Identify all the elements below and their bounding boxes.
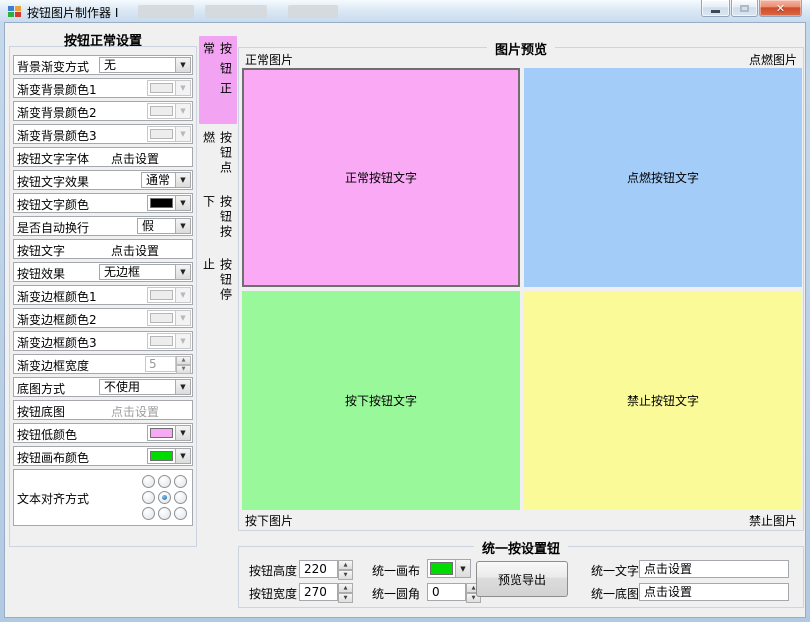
color-swatch (150, 451, 173, 461)
unified-settings-title: 统一按设置钮 (239, 538, 803, 557)
button-low-color-select[interactable]: ▼ (147, 425, 191, 441)
button-canvas-color-select[interactable]: ▼ (147, 448, 191, 464)
minimize-button[interactable] (701, 0, 730, 17)
window-content: 按钮正常设置 背景渐变方式 无 ▼ 渐变背景颜色1 ▼ (4, 22, 806, 618)
setting-label: 按钮文字颜色 (17, 196, 89, 213)
maximize-button[interactable] (731, 0, 758, 17)
align-bottom-right-radio[interactable] (174, 507, 187, 520)
chevron-down-icon: ▼ (175, 127, 190, 141)
row-button-text-font: 按钮文字字体 点击设置 (13, 147, 193, 167)
row-gradient-border-width: 渐变边框宽度 5 ▲▼ (13, 354, 193, 374)
close-icon: ✕ (776, 3, 785, 14)
color-swatch (150, 290, 173, 300)
unified-base-setter[interactable]: 点击设置 (639, 583, 789, 601)
normal-preview-panel: 正常按钮文字 (242, 68, 520, 287)
align-middle-center-radio[interactable] (158, 491, 171, 504)
chevron-down-icon: ▼ (175, 426, 190, 440)
unified-canvas-label: 统一画布 (372, 562, 420, 579)
row-button-base-image: 按钮底图 点击设置 (13, 400, 193, 420)
setting-label: 是否自动换行 (17, 219, 89, 236)
hover-preview-panel: 点燃按钮文字 (524, 68, 802, 287)
unified-text-label: 统一文字 (591, 562, 639, 579)
button-base-image-setter: 点击设置 (111, 403, 159, 420)
redacted-text (205, 5, 267, 18)
chevron-down-icon: ▼ (175, 196, 190, 210)
text-alignment-grid (142, 475, 189, 522)
redacted-text (138, 5, 194, 18)
window-controls: ✕ (700, 0, 802, 17)
title-bar: 按钮图片制作器 I ✕ (0, 0, 810, 22)
setting-label: 渐变背景颜色3 (17, 127, 97, 144)
normal-image-label: 正常图片 (245, 51, 293, 68)
maximize-icon (740, 5, 749, 12)
align-bottom-center-radio[interactable] (158, 507, 171, 520)
app-window: 按钮图片制作器 I ✕ 按钮正常设置 背景渐变方式 无 ▼ (0, 0, 810, 622)
button-height-label: 按钮高度 (249, 562, 297, 579)
gradient-border-width-stepper: 5 ▲▼ (145, 356, 191, 372)
base-image-mode-select[interactable]: 不使用 ▼ (99, 379, 191, 395)
color-swatch (150, 313, 173, 323)
gradient-border-color-1-select: ▼ (147, 287, 191, 303)
unified-settings-group: 统一按设置钮 按钮高度 220 ▲▼ 按钮宽度 270 ▲▼ 统一画布 ▼ 统一… (238, 546, 804, 608)
setting-label: 渐变边框颜色3 (17, 334, 97, 351)
color-swatch (150, 106, 173, 116)
chevron-down-icon: ▼ (175, 58, 190, 72)
unified-base-label: 统一底图 (591, 585, 639, 602)
tab-button-hover[interactable]: 按钮点燃 (199, 128, 237, 191)
row-button-low-color: 按钮低颜色 ▼ (13, 423, 193, 443)
setting-label: 按钮文字效果 (17, 173, 89, 190)
row-button-text-effect: 按钮文字效果 通常 ▼ (13, 170, 193, 190)
row-gradient-border-color-3: 渐变边框颜色3 ▼ (13, 331, 193, 351)
row-button-effect: 按钮效果 无边框 ▼ (13, 262, 193, 282)
chevron-down-icon: ▼ (175, 219, 190, 233)
row-gradient-border-color-2: 渐变边框颜色2 ▼ (13, 308, 193, 328)
row-gradient-bg-color-2: 渐变背景颜色2 ▼ (13, 101, 193, 121)
button-text-color-select[interactable]: ▼ (147, 195, 191, 211)
spinner-down-icon: ▼ (338, 593, 353, 603)
button-text-font-setter[interactable]: 点击设置 (111, 150, 159, 167)
setting-label: 渐变背景颜色2 (17, 104, 97, 121)
setting-label: 按钮效果 (17, 265, 65, 282)
gradient-border-color-2-select: ▼ (147, 310, 191, 326)
chevron-down-icon: ▼ (455, 560, 470, 577)
align-middle-right-radio[interactable] (174, 491, 187, 504)
unified-radius-label: 统一圆角 (372, 585, 420, 602)
row-button-text: 按钮文字 点击设置 (13, 239, 193, 259)
chevron-down-icon: ▼ (175, 265, 190, 279)
chevron-down-icon: ▼ (175, 311, 190, 325)
color-swatch (150, 336, 173, 346)
row-text-alignment: 文本对齐方式 (13, 469, 193, 526)
normal-settings-group: 按钮正常设置 背景渐变方式 无 ▼ 渐变背景颜色1 ▼ (9, 46, 197, 547)
tab-button-normal[interactable]: 按钮正常 (199, 36, 237, 124)
button-text-effect-select[interactable]: 通常 ▼ (141, 172, 191, 188)
bg-gradient-mode-select[interactable]: 无 ▼ (99, 57, 191, 73)
align-middle-left-radio[interactable] (142, 491, 155, 504)
row-bg-gradient-mode: 背景渐变方式 无 ▼ (13, 55, 193, 75)
state-tabstrip: 按钮正常 按钮点燃 按钮按下 按钮停止 (204, 36, 231, 318)
row-gradient-border-color-1: 渐变边框颜色1 ▼ (13, 285, 193, 305)
gradient-border-color-3-select: ▼ (147, 333, 191, 349)
spinner-down-icon: ▼ (338, 570, 353, 580)
button-effect-select[interactable]: 无边框 ▼ (99, 264, 191, 280)
window-title: 按钮图片制作器 I (27, 4, 118, 21)
color-swatch (150, 428, 173, 438)
color-swatch (430, 562, 453, 575)
tab-button-disabled[interactable]: 按钮停止 (199, 255, 237, 318)
app-icon (7, 4, 22, 19)
setting-label: 按钮画布颜色 (17, 449, 89, 466)
button-height-stepper[interactable]: ▲▼ (338, 560, 353, 578)
setting-label: 渐变边框颜色2 (17, 311, 97, 328)
gradient-bg-color-2-select: ▼ (147, 103, 191, 119)
preview-group: 图片预览 正常图片 点燃图片 正常按钮文字 点燃按钮文字 按下按钮文字 禁止按钮… (238, 47, 804, 531)
setting-label: 渐变边框宽度 (17, 357, 89, 374)
setting-label: 按钮文字字体 (17, 150, 89, 167)
pressed-image-label: 按下图片 (245, 512, 293, 529)
setting-label: 渐变背景颜色1 (17, 81, 97, 98)
chevron-down-icon: ▼ (175, 449, 190, 463)
button-width-stepper[interactable]: ▲▼ (338, 583, 353, 601)
auto-wrap-select[interactable]: 假 ▼ (137, 218, 191, 234)
gradient-bg-color-3-select: ▼ (147, 126, 191, 142)
row-gradient-bg-color-3: 渐变背景颜色3 ▼ (13, 124, 193, 144)
tab-button-pressed[interactable]: 按钮按下 (199, 192, 237, 255)
button-height-input[interactable]: 220 (299, 560, 338, 578)
chevron-down-icon: ▼ (175, 81, 190, 95)
spinner-up-icon: ▲ (338, 560, 353, 570)
spinner-up-icon: ▲ (176, 356, 191, 365)
row-button-text-color: 按钮文字颜色 ▼ (13, 193, 193, 213)
setting-label: 渐变边框颜色1 (17, 288, 97, 305)
align-top-right-radio[interactable] (174, 475, 187, 488)
disabled-preview-panel: 禁止按钮文字 (524, 291, 802, 510)
preview-grid: 正常按钮文字 点燃按钮文字 按下按钮文字 禁止按钮文字 (242, 68, 802, 510)
normal-preview-text: 正常按钮文字 (345, 169, 417, 186)
setting-label: 按钮低颜色 (17, 426, 77, 443)
unified-canvas-color-select[interactable]: ▼ (427, 559, 471, 578)
align-top-left-radio[interactable] (142, 475, 155, 488)
close-button[interactable]: ✕ (759, 0, 802, 17)
chevron-down-icon: ▼ (175, 380, 190, 394)
chevron-down-icon: ▼ (175, 334, 190, 348)
color-swatch (150, 198, 173, 208)
button-text-setter[interactable]: 点击设置 (111, 242, 159, 259)
chevron-down-icon: ▼ (175, 288, 190, 302)
row-base-image-mode: 底图方式 不使用 ▼ (13, 377, 193, 397)
chevron-down-icon: ▼ (175, 104, 190, 118)
setting-label: 文本对齐方式 (17, 490, 89, 507)
disabled-preview-text: 禁止按钮文字 (627, 392, 699, 409)
redacted-text (288, 5, 338, 18)
normal-settings-title: 按钮正常设置 (10, 30, 196, 49)
setting-label: 按钮文字 (17, 242, 65, 259)
align-bottom-left-radio[interactable] (142, 507, 155, 520)
preview-title: 图片预览 (239, 39, 803, 58)
row-button-canvas-color: 按钮画布颜色 ▼ (13, 446, 193, 466)
spinner-up-icon: ▲ (338, 583, 353, 593)
pressed-preview-text: 按下按钮文字 (345, 392, 417, 409)
color-swatch (150, 129, 173, 139)
pressed-preview-panel: 按下按钮文字 (242, 291, 520, 510)
setting-label: 底图方式 (17, 380, 65, 397)
preview-export-button[interactable]: 预览导出 (476, 561, 568, 597)
chevron-down-icon: ▼ (175, 173, 190, 187)
hover-preview-text: 点燃按钮文字 (627, 169, 699, 186)
spinner-buttons: ▲▼ (176, 356, 191, 372)
unified-text-setter[interactable]: 点击设置 (639, 560, 789, 578)
button-width-input[interactable]: 270 (299, 583, 338, 601)
unified-radius-input[interactable]: 0 (427, 583, 466, 601)
setting-label: 背景渐变方式 (17, 58, 89, 75)
row-gradient-bg-color-1: 渐变背景颜色1 ▼ (13, 78, 193, 98)
spinner-down-icon: ▼ (176, 365, 191, 374)
disabled-image-label: 禁止图片 (749, 512, 797, 529)
row-auto-wrap: 是否自动换行 假 ▼ (13, 216, 193, 236)
setting-label: 按钮底图 (17, 403, 65, 420)
gradient-bg-color-1-select: ▼ (147, 80, 191, 96)
button-width-label: 按钮宽度 (249, 585, 297, 602)
minimize-icon (711, 10, 720, 13)
hover-image-label: 点燃图片 (749, 51, 797, 68)
align-top-center-radio[interactable] (158, 475, 171, 488)
color-swatch (150, 83, 173, 93)
